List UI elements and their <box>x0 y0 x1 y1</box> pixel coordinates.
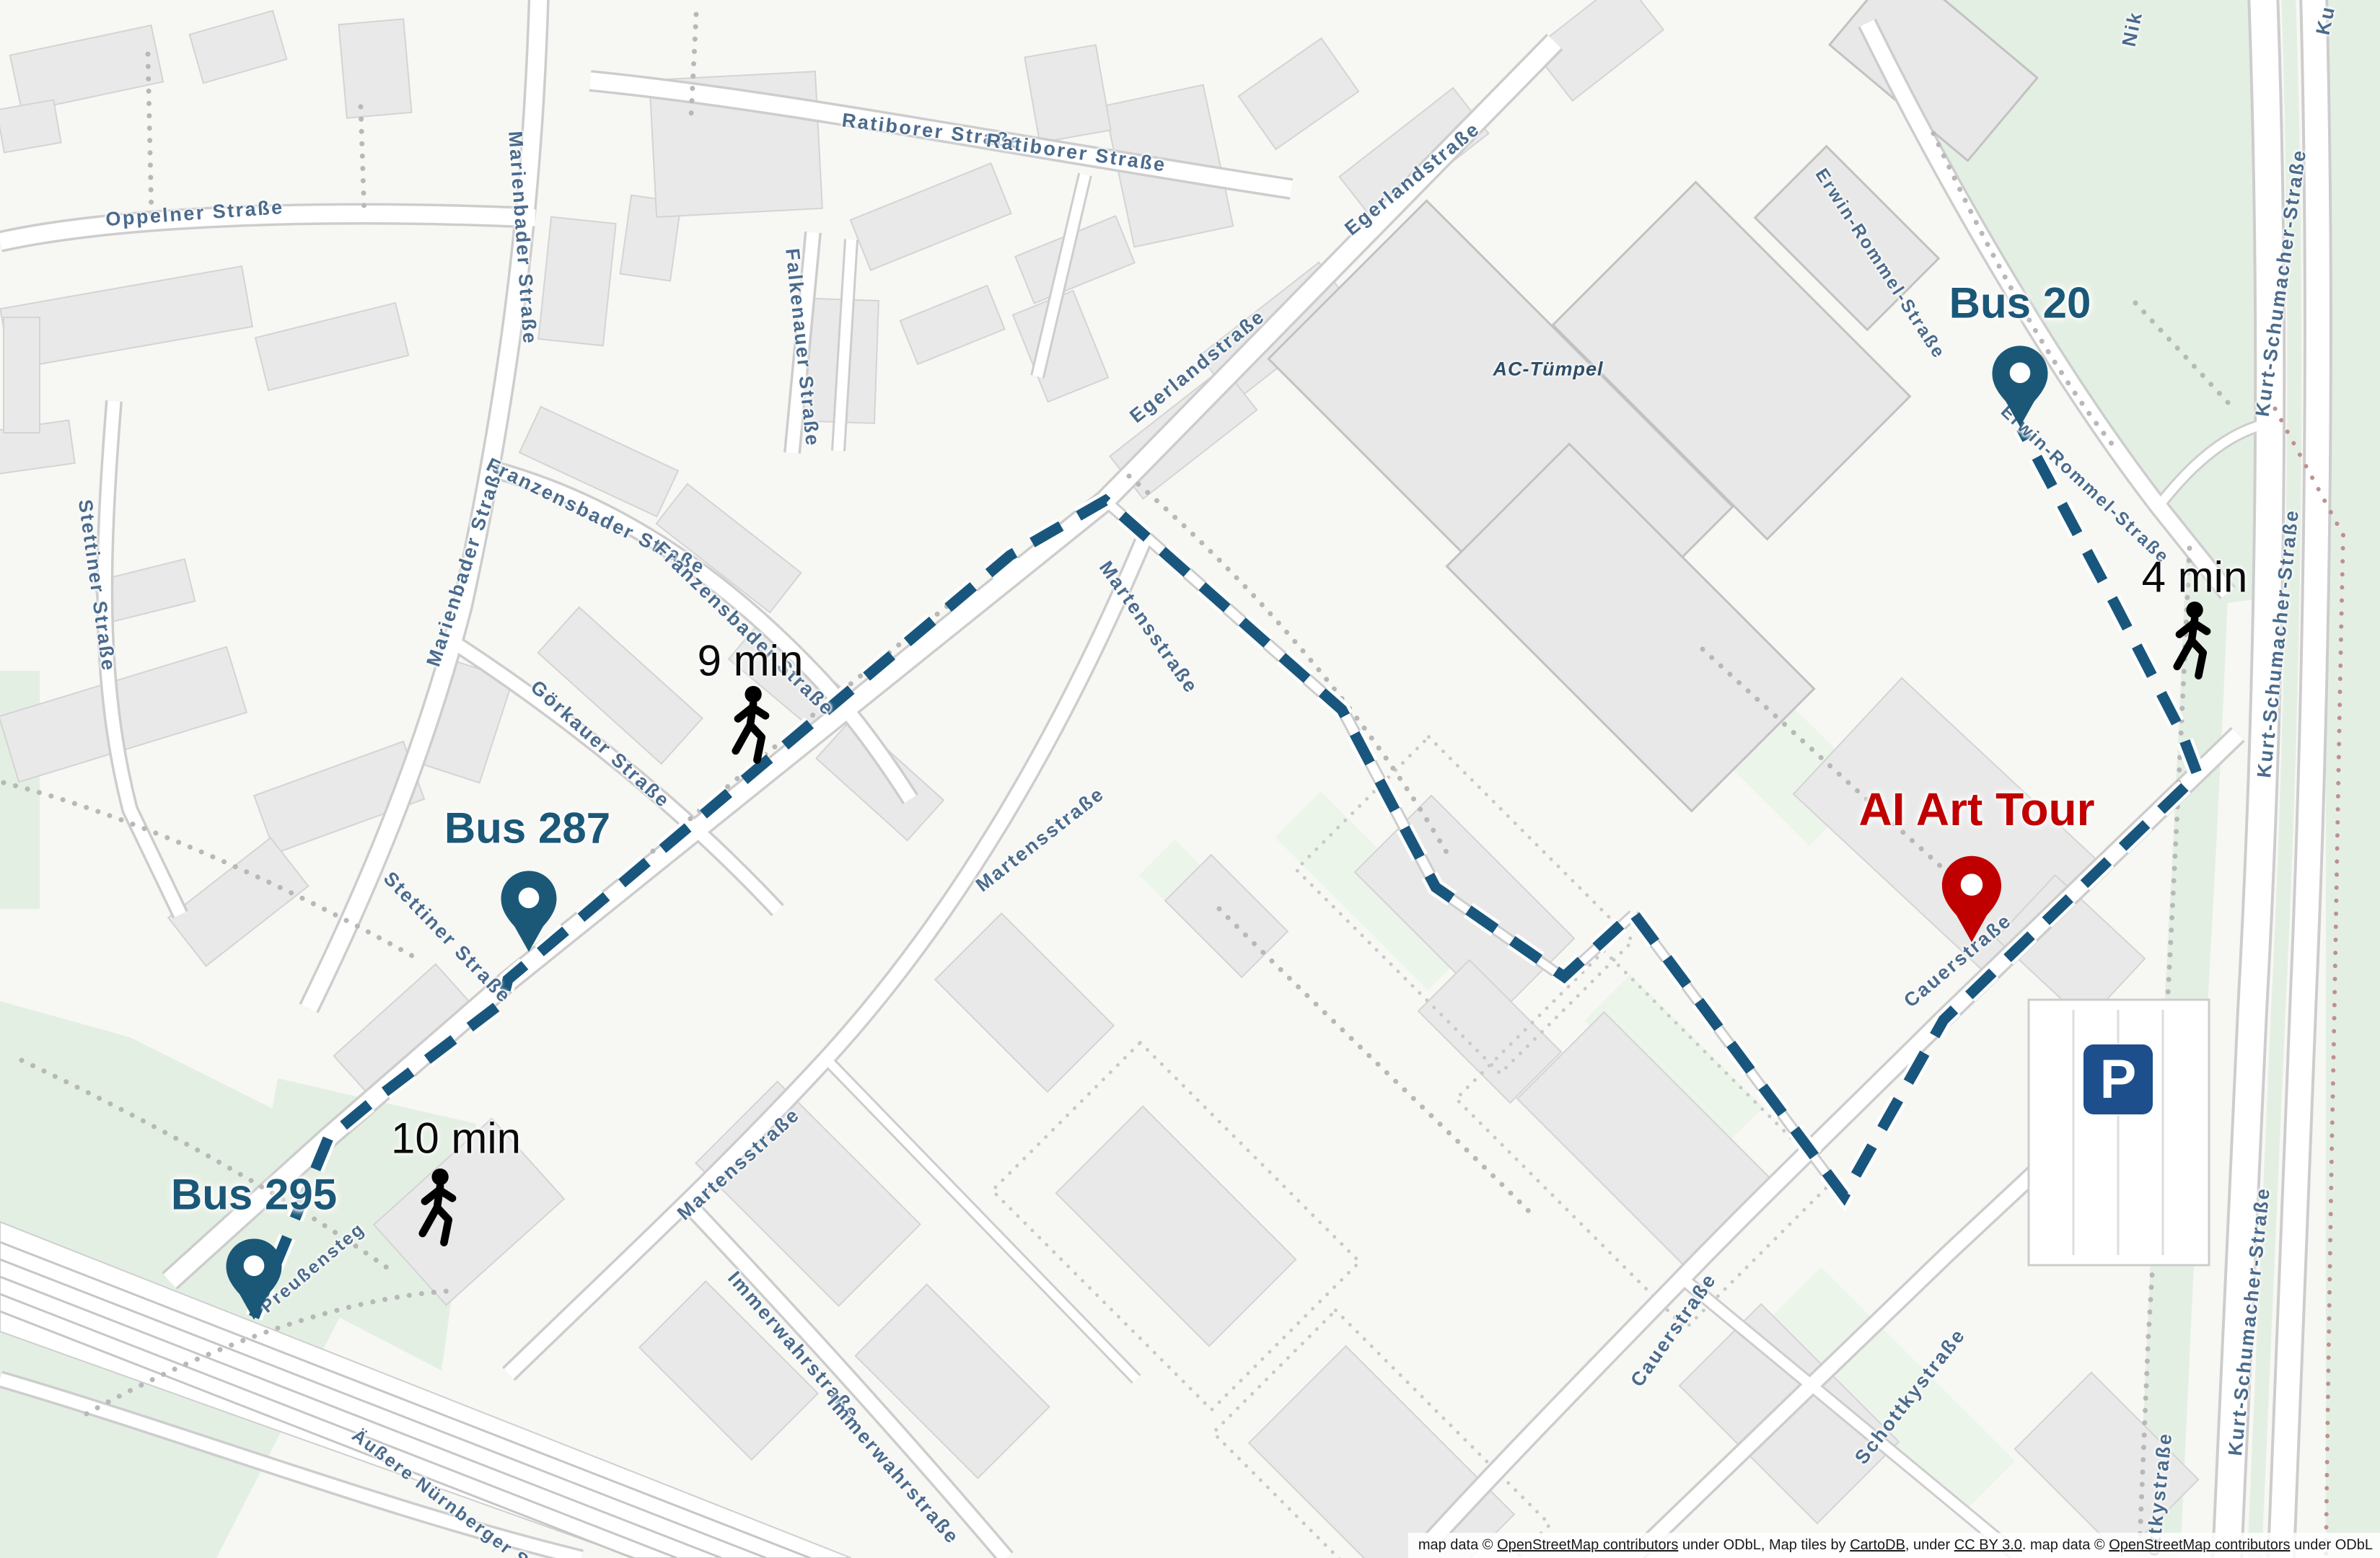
parking-lot <box>2029 1000 2209 1265</box>
attribution-link-osm[interactable]: OpenStreetMap contributors <box>1497 1537 1678 1553</box>
parking-icon[interactable]: P <box>2083 1044 2153 1114</box>
ac-tuempel-label: AC-Tümpel <box>1493 358 1604 381</box>
bus-20-label: Bus 20 <box>1949 278 2091 328</box>
walk-time-10min: 10 min <box>391 1114 521 1163</box>
bus-287-label: Bus 287 <box>444 804 610 853</box>
walk-time-4min: 4 min <box>2142 553 2248 602</box>
map-viewport: Oppelner Straße Ratiborer Straße Ratibor… <box>0 0 2380 1558</box>
destination-pin location-pin-icon[interactable] <box>1938 853 2005 946</box>
bus-287-pin location-pin-icon[interactable] <box>498 868 560 955</box>
walking-person-icon <box>726 685 778 765</box>
bus-295-label: Bus 295 <box>171 1170 337 1220</box>
attribution-link-ccby[interactable]: CC BY 3.0 <box>1954 1537 2022 1553</box>
basemap <box>0 0 2380 1558</box>
attribution-text: . map data © <box>2022 1537 2109 1553</box>
attribution-text: map data © <box>1418 1537 1497 1553</box>
bus-20-pin location-pin-icon[interactable] <box>1989 343 2051 430</box>
attribution-link-cartodb[interactable]: CartoDB <box>1850 1537 1905 1553</box>
destination-label: AI Art Tour <box>1858 783 2094 836</box>
bus-295-pin location-pin-icon[interactable] <box>223 1236 285 1323</box>
attribution-text: under ODbL, Map tiles by <box>1678 1537 1850 1553</box>
attribution-link-osm2[interactable]: OpenStreetMap contributors <box>2109 1537 2290 1553</box>
attribution-text: under ODbL <box>2290 1537 2373 1553</box>
walk-time-9min: 9 min <box>698 636 804 686</box>
walking-person-icon <box>2167 600 2219 681</box>
map-attribution: map data © OpenStreetMap contributors un… <box>1408 1533 2380 1558</box>
walking-person-icon <box>413 1167 465 1248</box>
attribution-text: , under <box>1905 1537 1954 1553</box>
